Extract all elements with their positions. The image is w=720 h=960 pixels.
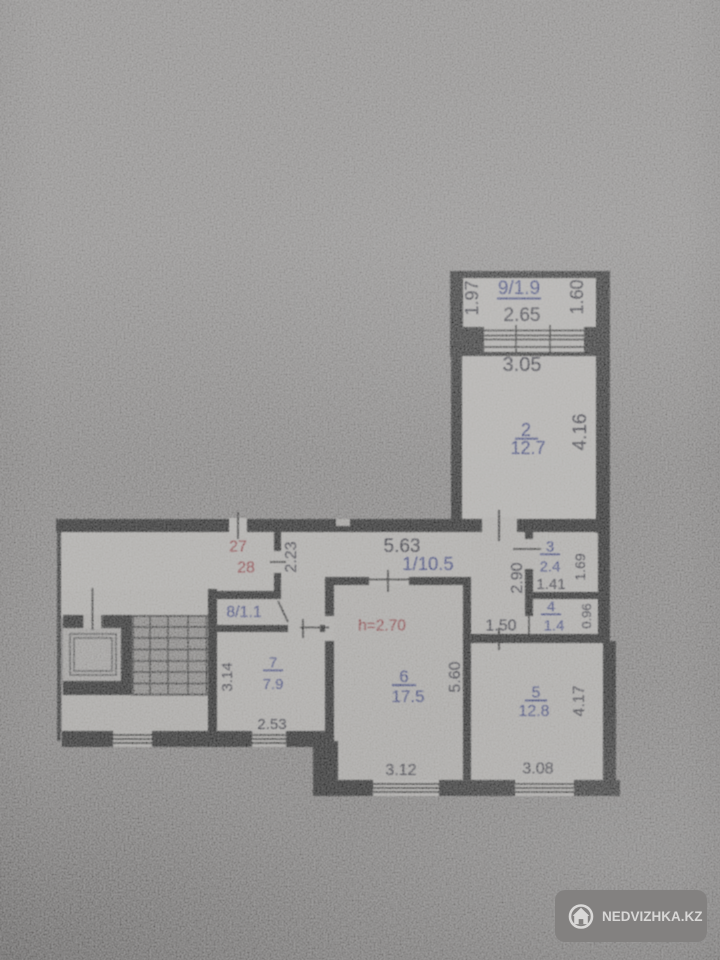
svg-text:NEDVIZHKA.KZ: NEDVIZHKA.KZ: [602, 909, 703, 924]
